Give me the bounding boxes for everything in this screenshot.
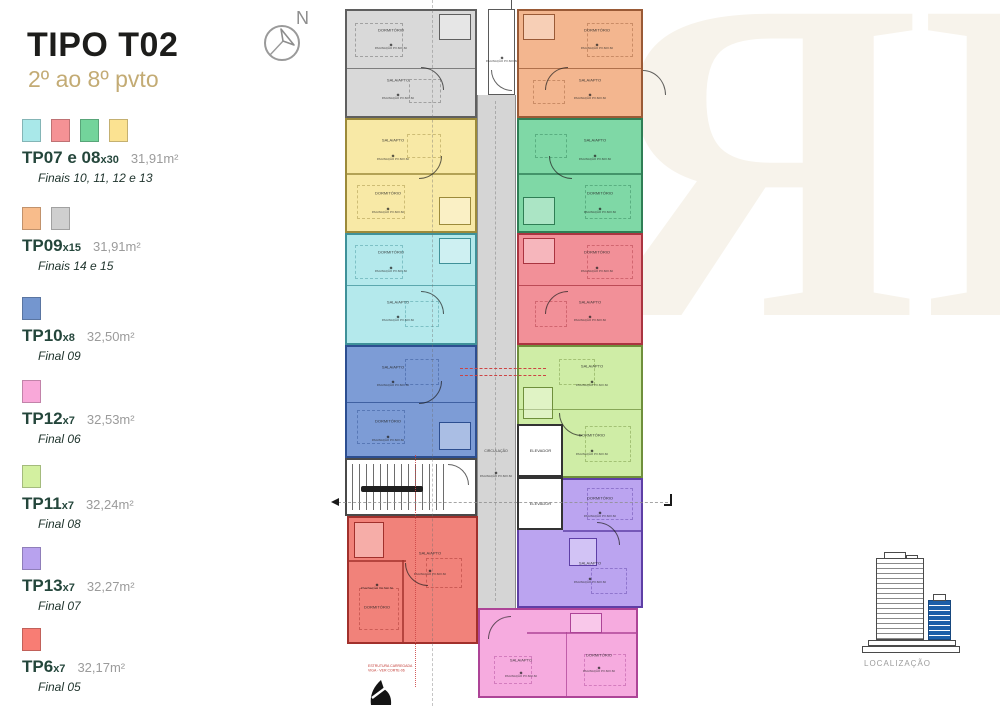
interior-wall [519, 68, 641, 70]
room-label-dormitorio: DORMITÓRIO [378, 28, 404, 33]
legend-code: TP12 [22, 409, 63, 428]
elevator-label: ELEVADOR [529, 448, 550, 453]
legend-swatches [22, 297, 135, 320]
bathroom [354, 522, 384, 558]
color-swatch-yellow [109, 119, 128, 142]
corridor: CIRCULAÇÃO ◆PAGINAÇÃO PX.60X.60 [477, 95, 516, 608]
room-label-sala: SALA/APTO [509, 658, 531, 663]
tile-diamond-icon: ◆ [370, 435, 405, 439]
section-arrow-icon [331, 498, 339, 506]
watermark-letter: R [920, 0, 1000, 370]
legend-area: 32,53m² [87, 412, 135, 427]
unit-tp10-blue: SALA/APTO ◆PAGINAÇÃO PX.60X.60 DORMITÓRI… [345, 345, 477, 458]
brand-watermark: RR [628, 0, 1000, 370]
legend-swatches [22, 207, 141, 230]
tile-note: ◆PAGINAÇÃO PX.60X.60 [582, 207, 617, 214]
bathroom [523, 238, 555, 264]
door-arc [545, 291, 568, 314]
door-arc [549, 156, 572, 179]
corridor-axis-line [495, 101, 496, 601]
unit-tp07-cyan: DORMITÓRIO ◆PAGINAÇÃO PX.60X.60 SALA/APT… [345, 233, 477, 345]
color-swatch-purple [22, 547, 41, 570]
room-label-dormitorio: DORMITÓRIO [587, 191, 613, 196]
room-label-sala: SALA/APTO [382, 364, 404, 369]
tile-note: ◆PAGINAÇÃO PX.60X.60 [359, 584, 394, 591]
tile-note: ◆PAGINAÇÃO PX.60X.60 [375, 154, 410, 161]
bathroom [523, 14, 555, 40]
bathroom [439, 197, 471, 225]
bathroom [523, 197, 555, 225]
legend-area: 32,27m² [87, 579, 135, 594]
legend-entry-tp13: TP13x732,27m² Final 07 [22, 547, 135, 613]
structure-annotation: ESTRUTURA CARREGADA VIGA - VER CORTE-06 [368, 664, 412, 673]
localizacao-label: LOCALIZAÇÃO [864, 659, 931, 668]
legend-code: TP13 [22, 576, 63, 595]
tile-note: ◆PAGINAÇÃO PX.60X.60 [582, 512, 617, 519]
legend-swatches [22, 628, 125, 651]
tile-note: ◆PAGINAÇÃO PX.60X.60 [370, 207, 405, 214]
building-roof-detail [933, 594, 946, 601]
tile-note: ◆PAGINAÇÃO PX.60X.60 [373, 266, 408, 273]
tile-note: ◆PAGINAÇÃO PX.60X.60 [484, 56, 519, 63]
section-tick [664, 494, 672, 506]
emergency-stairs [345, 458, 477, 516]
legend-finals: Final 05 [38, 680, 125, 694]
door-arc [419, 156, 442, 179]
building-roof-detail [884, 552, 906, 559]
room-label-sala: SALA/APTO [387, 78, 409, 83]
unit-tp08-green: SALA/APTO ◆PAGINAÇÃO PX.60X.60 DORMITÓRI… [517, 118, 643, 233]
room-label-dormitorio: DORMITÓRIO [364, 605, 390, 610]
room-label-sala: SALA/APTO [579, 561, 601, 566]
room-label-dormitorio: DORMITÓRIO [584, 28, 610, 33]
color-swatch-pink [22, 380, 41, 403]
tile-note: ◆PAGINAÇÃO PX.60X.60 [478, 471, 513, 478]
color-swatch-red [22, 628, 41, 651]
interior-wall [347, 285, 475, 287]
furniture-table [535, 134, 567, 158]
room-label-sala: SALA/APTO [387, 300, 409, 305]
legend-entry-tp11: TP11x732,24m² Final 08 [22, 465, 134, 531]
door-arc [545, 67, 568, 90]
legend-swatches [22, 547, 135, 570]
interior-wall [347, 173, 475, 175]
legend-area: 32,50m² [87, 329, 135, 344]
unit-tp07-yellow: SALA/APTO ◆PAGINAÇÃO PX.60X.60 DORMITÓRI… [345, 118, 477, 233]
red-dashed-line [460, 368, 546, 369]
legend-area: 32,17m² [77, 660, 125, 675]
legend-swatches [22, 380, 135, 403]
tile-note: ◆PAGINAÇÃO PX.60X.60 [577, 154, 612, 161]
unit-tp09-final15: DORMITÓRIO ◆PAGINAÇÃO PX.60X.60 SALA/APT… [345, 9, 477, 118]
corridor-label: CIRCULAÇÃO [484, 449, 508, 453]
tile-note: ◆PAGINAÇÃO PX.60X.60 [370, 435, 405, 442]
legend-finals: Final 09 [38, 349, 135, 363]
interior-wall [519, 173, 641, 175]
legend-code: TP6 [22, 657, 53, 676]
bathroom [570, 613, 602, 633]
room-label-sala: SALA/APTO [419, 550, 441, 555]
unit-tp6-red: SALA/APTO ◆PAGINAÇÃO PX.60X.60 DORMITÓRI… [347, 516, 478, 644]
door-arc [597, 522, 620, 545]
color-swatch-orange [22, 207, 41, 230]
color-swatch-salmon [51, 119, 70, 142]
legend-area: 32,24m² [86, 497, 134, 512]
legend-swatches [22, 119, 179, 142]
room-label-sala: SALA/APTO [382, 138, 404, 143]
bathroom [523, 387, 553, 419]
tile-note: ◆PAGINAÇÃO PX.60X.60 [572, 93, 607, 100]
legend-finals: Final 07 [38, 599, 135, 613]
legend-multiplier: x30 [100, 154, 118, 166]
legend-code: TP10 [22, 326, 63, 345]
tile-note: ◆PAGINAÇÃO PX.60X.60 [503, 672, 538, 679]
legend-entry-tp12: TP12x732,53m² Final 06 [22, 380, 135, 446]
watermark-letter-mirrored: R [628, 0, 920, 370]
legend-multiplier: x7 [62, 500, 74, 512]
building-icon-tall [876, 558, 924, 640]
axis-stub [511, 0, 512, 9]
legend-multiplier: x7 [63, 582, 75, 594]
room-label-dormitorio: DORMITÓRIO [378, 250, 404, 255]
legend-finals: Finais 14 e 15 [38, 259, 141, 273]
room-label-sala: SALA/APTO [584, 138, 606, 143]
tile-diamond-icon: ◆ [373, 266, 408, 270]
color-swatch-blue [22, 297, 41, 320]
legend-entry-tp07-08: TP07 e 08x3031,91m² Finais 10, 11, 12 e … [22, 119, 179, 185]
legend-entry-tp10: TP10x832,50m² Final 09 [22, 297, 135, 363]
bathroom [439, 14, 471, 40]
legend-area: 31,91m² [131, 151, 179, 166]
legend-code: TP09 [22, 236, 63, 255]
legend-code: TP11 [22, 494, 62, 513]
legend-code: TP07 e 08 [22, 148, 100, 167]
tile-note: ◆PAGINAÇÃO PX.60X.60 [373, 43, 408, 50]
tile-note: ◆PAGINAÇÃO PX.60X.60 [375, 380, 410, 387]
legend-area: 31,91m² [93, 239, 141, 254]
architect-logo [368, 678, 394, 707]
legend-multiplier: x15 [63, 242, 81, 254]
unit-tp07-salmon: DORMITÓRIO ◆PAGINAÇÃO PX.60X.60 SALA/APT… [517, 233, 643, 345]
red-dashed-line [460, 375, 546, 376]
legend-finals: Finais 10, 11, 12 e 13 [38, 171, 179, 185]
tile-note: ◆PAGINAÇÃO PX.60X.60 [581, 666, 616, 673]
stair-handrail [361, 486, 423, 492]
tile-note: ◆PAGINAÇÃO PX.60X.60 [575, 449, 610, 456]
room-label-dormitorio: DORMITÓRIO [375, 191, 401, 196]
door-arc [448, 464, 469, 485]
door-arc [405, 563, 428, 586]
bathroom [439, 422, 471, 450]
legend-multiplier: x7 [53, 663, 65, 675]
legend-entry-tp09: TP09x1531,91m² Finais 14 e 15 [22, 207, 141, 273]
entry-hall: ◆PAGINAÇÃO PX.60X.60 [488, 9, 515, 95]
interior-wall [519, 285, 641, 287]
section-cut-line [338, 502, 668, 503]
elevator-1: ELEVADOR [517, 424, 563, 477]
legend-entry-tp6: TP6x732,17m² Final 05 [22, 628, 125, 694]
legend-swatches [22, 465, 134, 488]
door-arc [491, 70, 512, 91]
interior-wall [349, 560, 406, 562]
room-label-dormitorio: DORMITÓRIO [375, 419, 401, 424]
building-icon-highlighted [928, 600, 951, 640]
elevator-2: ELEVADOR [517, 477, 563, 530]
color-swatch-green [80, 119, 99, 142]
door-arc [488, 616, 511, 639]
page-subtitle: 2º ao 8º pvto [28, 66, 159, 93]
furniture-table [407, 134, 441, 158]
interior-wall [347, 402, 475, 404]
room-label-dormitorio: DORMITÓRIO [586, 652, 612, 657]
page-canvas: RR TIPO T02 2º ao 8º pvto TP07 e 08x3031… [0, 0, 1000, 707]
logo-mark-icon [368, 678, 394, 706]
interior-wall [347, 68, 475, 70]
axis-line-vertical [432, 0, 433, 706]
color-swatch-lightgreen [22, 465, 41, 488]
tile-note: ◆PAGINAÇÃO PX.60X.60 [572, 316, 607, 323]
interior-wall [402, 560, 404, 642]
tile-note: ◆PAGINAÇÃO PX.60X.60 [381, 316, 416, 323]
color-swatch-gray [51, 207, 70, 230]
tile-note: ◆PAGINAÇÃO PX.60X.60 [579, 43, 614, 50]
interior-wall [566, 632, 568, 696]
building-base [862, 646, 960, 653]
room-label-sala: SALA/APTO [579, 78, 601, 83]
room-label-dormitorio: DORMITÓRIO [584, 250, 610, 255]
north-compass: N [252, 2, 318, 79]
structure-projection-line [415, 455, 416, 687]
room-label-sala: SALA/APTO [579, 300, 601, 305]
page-title: TIPO T02 [27, 26, 178, 65]
north-arrow-icon: N [252, 2, 318, 74]
tile-diamond-icon: ◆ [579, 266, 614, 270]
room-label-sala: SALA/APTO [581, 364, 603, 369]
legend-multiplier: x8 [63, 332, 75, 344]
svg-text:N: N [296, 8, 309, 28]
tile-note: ◆PAGINAÇÃO PX.60X.60 [579, 266, 614, 273]
tile-note: ◆PAGINAÇÃO PX.60X.60 [575, 381, 610, 388]
legend-finals: Final 06 [38, 432, 135, 446]
building-roof-detail [906, 555, 918, 559]
legend-multiplier: x7 [63, 415, 75, 427]
unit-tp12-pink: SALA/APTO ◆PAGINAÇÃO PX.60X.60 DORMITÓRI… [478, 608, 638, 698]
room-label-dormitorio: DORMITÓRIO [587, 495, 613, 500]
color-swatch-cyan [22, 119, 41, 142]
bathroom [439, 238, 471, 264]
room-label-dormitorio: DORMITÓRIO [579, 432, 605, 437]
legend-finals: Final 08 [38, 517, 134, 531]
tile-note: ◆PAGINAÇÃO PX.60X.60 [572, 577, 607, 584]
unit-tp09-final14: DORMITÓRIO ◆PAGINAÇÃO PX.60X.60 SALA/APT… [517, 9, 643, 118]
tile-note: ◆PAGINAÇÃO PX.60X.60 [381, 93, 416, 100]
